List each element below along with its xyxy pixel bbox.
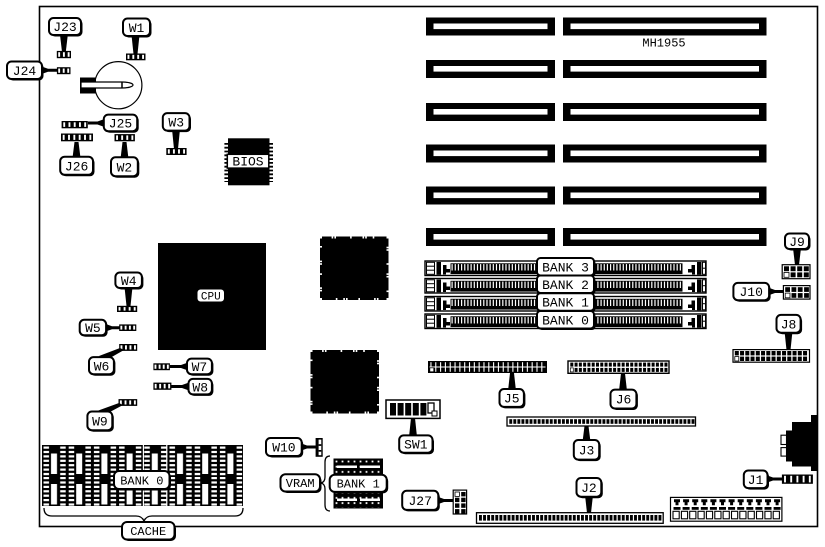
svg-text:W2: W2 <box>117 160 133 175</box>
svg-text:J5: J5 <box>504 392 520 407</box>
svg-text:BANK 3: BANK 3 <box>542 260 589 275</box>
svg-text:J26: J26 <box>65 159 88 174</box>
svg-text:W3: W3 <box>168 116 184 131</box>
svg-text:SW1: SW1 <box>404 438 428 453</box>
svg-text:BANK 2: BANK 2 <box>542 278 589 293</box>
svg-text:CACHE: CACHE <box>130 525 166 539</box>
svg-text:W4: W4 <box>121 274 137 289</box>
svg-text:BANK 1: BANK 1 <box>337 478 380 492</box>
svg-text:MH1955: MH1955 <box>642 37 685 51</box>
svg-text:J2: J2 <box>581 481 597 496</box>
svg-text:J8: J8 <box>781 318 797 333</box>
svg-text:W10: W10 <box>272 441 295 456</box>
svg-text:BANK 0: BANK 0 <box>542 313 589 328</box>
svg-text:W6: W6 <box>94 359 110 374</box>
svg-text:BIOS: BIOS <box>232 155 263 170</box>
svg-text:J10: J10 <box>739 285 762 300</box>
svg-text:W1: W1 <box>129 21 145 36</box>
svg-text:J9: J9 <box>789 235 805 250</box>
svg-text:J3: J3 <box>579 444 595 459</box>
svg-text:W7: W7 <box>192 360 208 375</box>
svg-text:W8: W8 <box>192 380 208 395</box>
svg-text:CPU: CPU <box>201 292 221 304</box>
svg-text:J1: J1 <box>748 473 764 488</box>
svg-text:W9: W9 <box>92 415 108 430</box>
svg-text:J24: J24 <box>13 64 37 79</box>
svg-text:J6: J6 <box>616 393 632 408</box>
svg-text:W5: W5 <box>85 321 101 336</box>
svg-text:VRAM: VRAM <box>286 477 315 491</box>
svg-text:BANK 0: BANK 0 <box>120 474 163 488</box>
svg-text:J23: J23 <box>53 20 76 35</box>
svg-text:J27: J27 <box>408 494 431 509</box>
svg-text:J25: J25 <box>109 117 132 132</box>
svg-text:BANK 1: BANK 1 <box>542 296 589 311</box>
